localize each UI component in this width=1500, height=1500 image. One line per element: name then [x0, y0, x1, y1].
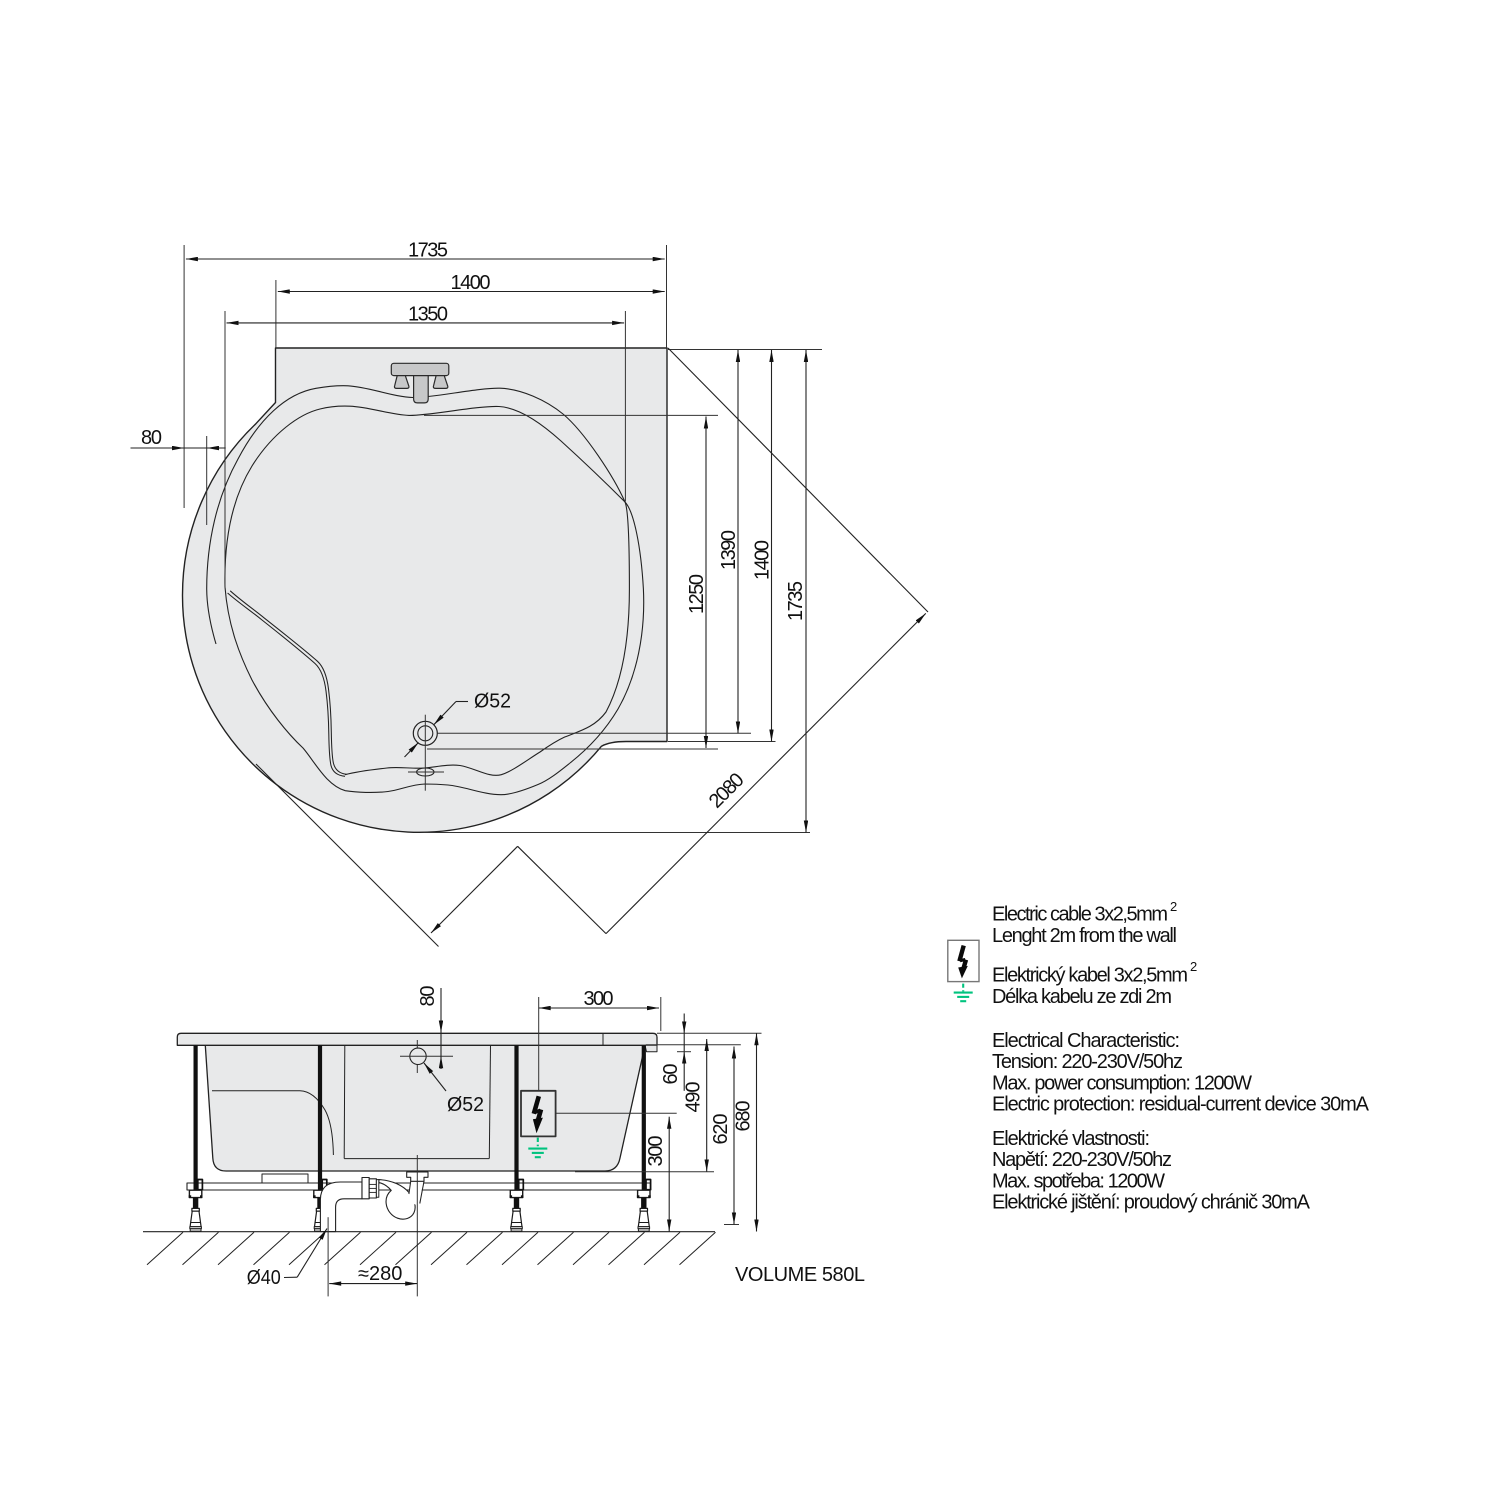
svg-text:Max. spotřeba: 1200W: Max. spotřeba: 1200W [992, 1170, 1165, 1192]
svg-text:Ø40: Ø40 [247, 1267, 281, 1289]
svg-text:VOLUME 580L: VOLUME 580L [735, 1264, 865, 1286]
svg-text:490: 490 [683, 1082, 705, 1113]
svg-text:1390: 1390 [718, 530, 740, 570]
svg-text:680: 680 [733, 1101, 755, 1132]
svg-text:620: 620 [710, 1114, 732, 1145]
svg-text:Elektrické vlastnosti:: Elektrické vlastnosti: [992, 1128, 1150, 1150]
svg-text:≈280: ≈280 [358, 1263, 402, 1285]
svg-text:1350: 1350 [408, 303, 448, 325]
svg-text:Ø52: Ø52 [447, 1094, 484, 1116]
svg-text:2080: 2080 [705, 769, 749, 813]
svg-text:1400: 1400 [752, 540, 774, 580]
svg-text:Tension: 220-230V/50hz: Tension: 220-230V/50hz [992, 1051, 1183, 1073]
svg-text:1735: 1735 [408, 240, 448, 262]
svg-text:80: 80 [141, 427, 162, 449]
svg-text:300: 300 [645, 1136, 667, 1167]
svg-text:300: 300 [584, 988, 614, 1010]
svg-text:80: 80 [417, 986, 439, 1007]
svg-text:2: 2 [1190, 959, 1197, 974]
svg-text:Ø52: Ø52 [474, 691, 511, 713]
svg-text:Napětí: 220-230V/50hz: Napětí: 220-230V/50hz [992, 1149, 1172, 1171]
svg-text:Délka kabelu ze zdi 2m: Délka kabelu ze zdi 2m [992, 986, 1172, 1008]
svg-text:Electrical Characteristic:: Electrical Characteristic: [992, 1030, 1180, 1052]
svg-text:2: 2 [1170, 899, 1177, 914]
svg-text:1400: 1400 [451, 272, 491, 294]
svg-text:Lenght 2m from the wall: Lenght 2m from the wall [992, 925, 1177, 947]
svg-text:1735: 1735 [785, 581, 807, 621]
svg-text:Electric protection: residual-: Electric protection: residual-current de… [992, 1094, 1370, 1116]
svg-text:Elektrický kabel 3x2,5mm: Elektrický kabel 3x2,5mm [992, 965, 1188, 987]
svg-text:Elektrické jištění: proudový c: Elektrické jištění: proudový chránič 30m… [992, 1192, 1311, 1214]
svg-text:60: 60 [660, 1064, 682, 1085]
svg-text:1250: 1250 [686, 574, 708, 614]
svg-text:Max. power consumption: 1200W: Max. power consumption: 1200W [992, 1072, 1252, 1094]
svg-text:Electric cable 3x2,5mm: Electric cable 3x2,5mm [992, 904, 1168, 926]
